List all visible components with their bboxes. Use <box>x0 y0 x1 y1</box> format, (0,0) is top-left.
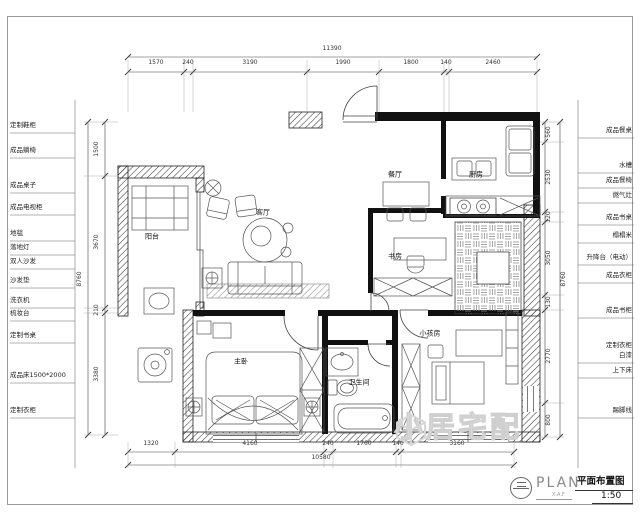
dim-bottom-overall: 10580 <box>311 455 330 461</box>
fridge <box>506 126 534 176</box>
callout-table: 成品桌子 <box>10 182 36 189</box>
dim-top-seg: 1990 <box>335 60 350 66</box>
dim-left-seg: 1500 <box>94 141 100 156</box>
callout-kids-wardrobe: 定制衣柜 <box>606 342 632 349</box>
dim-bottom-seg: 240 <box>322 441 333 447</box>
drawing-scale: 1:50 <box>601 492 621 501</box>
callout-bunk-bed: 上下床 <box>613 367 633 374</box>
room-label-kids: 小孩房 <box>420 331 441 338</box>
callout-skirting: 踢脚线 <box>613 407 633 414</box>
dim-top-seg: 140 <box>440 60 451 66</box>
room-label-kitchen: 厨房 <box>469 172 483 179</box>
callout-dresser: 梳妆台 <box>10 310 30 317</box>
callout-dining-chair: 成品餐椅 <box>606 177 632 184</box>
dim-left-seg: 3380 <box>94 366 100 381</box>
dining-table <box>383 182 429 206</box>
callout-lift-table: 升降台（电动） <box>587 254 633 261</box>
callout-desk: 定制书桌 <box>10 332 36 339</box>
title-plan-sub: X.A.F <box>552 493 565 498</box>
coffee-table <box>251 226 271 246</box>
laundry-sink <box>144 288 174 314</box>
room-label-balcony: 阳台 <box>145 234 159 241</box>
title-underline <box>575 490 633 491</box>
title-divider <box>536 499 572 500</box>
dim-right-seg: 2530 <box>546 169 552 184</box>
gas-stove <box>450 198 496 215</box>
dresser-stool <box>197 321 211 334</box>
room-label-living: 客厅 <box>256 210 270 217</box>
lift-table <box>477 252 509 284</box>
dim-left-seg: 210 <box>94 304 100 315</box>
dresser <box>213 323 231 338</box>
round-rug <box>243 218 287 262</box>
callout-washer: 洗衣机 <box>10 297 30 304</box>
room-label-dining: 餐厅 <box>388 172 402 179</box>
dim-left-overall: 8760 <box>77 271 83 286</box>
title-logo-icon <box>510 477 532 499</box>
room-label-bath: 卫生间 <box>349 380 370 387</box>
callout-rug: 地毯 <box>10 230 23 237</box>
callout-gas-stove: 燃气灶 <box>613 192 633 199</box>
armchair <box>235 195 258 218</box>
scale-underline <box>592 503 633 504</box>
tv-cabinet <box>207 284 329 298</box>
bunk-bed <box>432 362 484 404</box>
dim-left-seg: 3670 <box>94 234 100 249</box>
callout-sink: 水槽 <box>619 162 632 169</box>
washing-machine <box>138 348 172 382</box>
callout-floor-lamp: 落地灯 <box>10 244 30 251</box>
dim-top-seg: 1800 <box>403 60 418 66</box>
callout-bed: 成品床1500*2000 <box>10 372 66 379</box>
floor-plan-drawing <box>0 0 640 512</box>
toilet <box>328 380 337 395</box>
dim-bottom-seg: 4160 <box>242 441 257 447</box>
dim-top-seg: 1570 <box>148 60 163 66</box>
dim-top-seg: 2460 <box>485 60 500 66</box>
callout-tatami: 榻榻米 <box>613 232 633 239</box>
armchair <box>206 196 230 220</box>
callout-dining-table: 成品餐桌 <box>606 127 632 134</box>
dim-right-overall: 8760 <box>561 271 567 286</box>
dim-top-seg: 240 <box>182 60 193 66</box>
callout-sofa: 双人沙发 <box>10 258 36 265</box>
callout-study-desk: 成品书桌 <box>606 214 632 221</box>
dim-right-seg: 800 <box>546 414 552 425</box>
callout-wardrobe: 定制衣柜 <box>10 407 36 414</box>
callout-bookcase: 成品书柜 <box>606 307 632 314</box>
callout-sofa-cushion: 沙发垫 <box>10 277 30 284</box>
title-plan: PLAN <box>536 476 581 490</box>
drawing-title: 平面布置图 <box>577 477 625 487</box>
study-cabinet <box>374 278 452 296</box>
room-label-master: 主卧 <box>234 359 248 366</box>
dim-top-seg: 3190 <box>242 60 257 66</box>
dim-right-seg: 120 <box>546 211 552 222</box>
callout-white-paint: 白漆 <box>619 352 632 359</box>
dim-bottom-seg: 1760 <box>356 441 371 447</box>
callout-lounge-chair: 成品躺椅 <box>10 147 36 154</box>
dim-top-overall: 11390 <box>322 46 341 52</box>
callout-tv-cabinet: 成品电视柜 <box>10 204 43 211</box>
dim-right-seg: 3050 <box>546 250 552 265</box>
dim-right-seg: 2770 <box>546 348 552 363</box>
callout-shoe-cabinet: 定制鞋柜 <box>10 122 36 129</box>
dim-right-seg: 560 <box>546 126 552 137</box>
floor-plan-page: 11390 1570 240 3190 1990 1800 140 2460 1… <box>0 0 640 512</box>
kids-chair <box>428 345 443 358</box>
dim-bottom-seg: 1320 <box>143 441 158 447</box>
watermark: 小居宅配 <box>394 413 522 442</box>
watermark-cube-icon <box>394 413 428 447</box>
kids-desk <box>456 330 502 356</box>
dim-right-seg: 130 <box>546 296 552 307</box>
room-label-study: 书房 <box>388 254 402 261</box>
callout-wardrobe-right: 成品衣柜 <box>606 272 632 279</box>
lounge-bench <box>132 186 188 230</box>
